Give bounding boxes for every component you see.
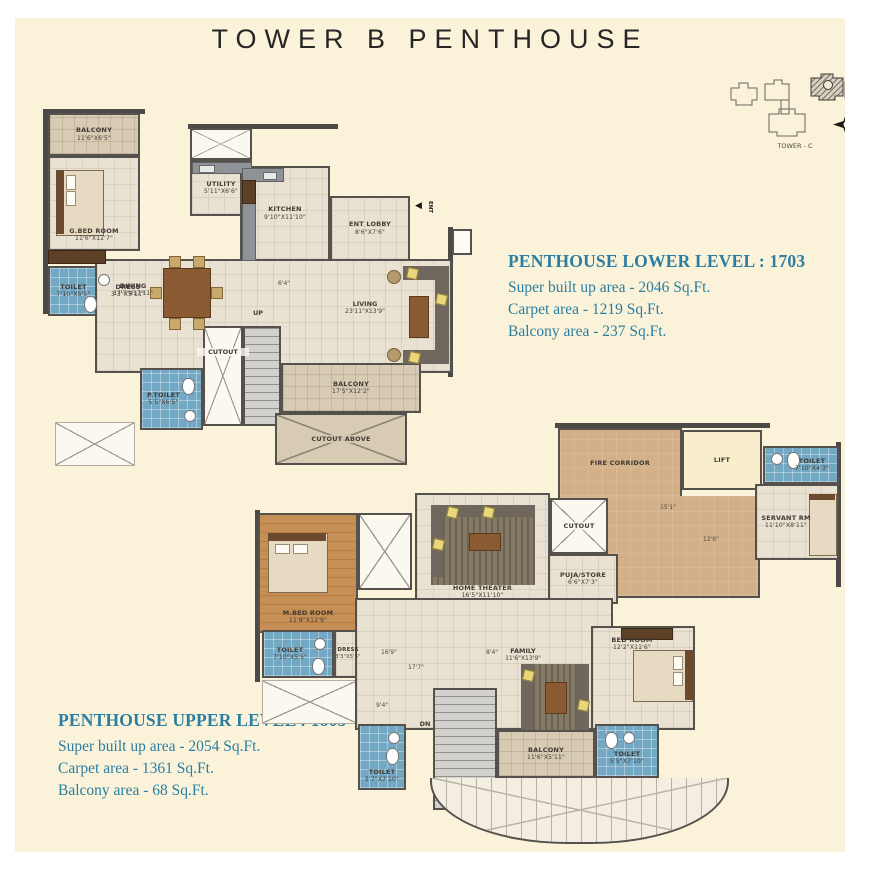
basin-icon xyxy=(388,732,400,744)
toilet-fixture-icon xyxy=(605,732,618,749)
chair-icon xyxy=(193,318,205,330)
wardrobe-icon xyxy=(48,250,106,264)
room-label: UTILITY 5'11"X6'6" xyxy=(204,180,238,196)
lower-level-balcony-area: Balcony area - 237 Sq.Ft. xyxy=(508,321,805,343)
room-label: BALCONY 11'6"X5'11" xyxy=(527,746,565,762)
toilet-fixture-icon xyxy=(386,748,399,765)
bed-icon xyxy=(268,533,328,593)
compass-icon xyxy=(833,110,845,139)
room-label: PUJA/STORE 6'6"X7'3" xyxy=(560,571,606,587)
room-label: BED ROOM 12'2"X11'6" xyxy=(597,636,667,652)
sofa-icon xyxy=(577,664,589,730)
terrace-hatch-upper xyxy=(262,680,358,724)
room-servant: SERVANT RM 11'10"X8'11" xyxy=(755,484,839,560)
room-label: TOILET 5'7"X7'10" xyxy=(360,768,404,784)
cutout-label: CUTOUT xyxy=(562,522,597,530)
dimension: 9'4" xyxy=(376,702,388,709)
lower-level-info: PENTHOUSE LOWER LEVEL : 1703 Super built… xyxy=(508,251,805,343)
toilet-fixture-icon xyxy=(312,658,325,675)
room-label: LIFT xyxy=(714,456,730,464)
shaft-upper xyxy=(358,513,412,590)
room-ent-lobby: ENT LOBBY 8'6"X7'6" xyxy=(330,196,410,261)
lower-level-carpet-area: Carpet area - 1219 Sq.Ft. xyxy=(508,299,805,321)
room-balcony-upper: BALCONY 11'6"X5'11" xyxy=(497,730,595,778)
room-lift: LIFT xyxy=(682,430,762,490)
upper-level-floorplan: FIRE CORRIDOR 15'1" 12'6" LIFT TOILET 7'… xyxy=(255,418,845,852)
dining-table-icon xyxy=(163,268,211,318)
room-kitchen: KITCHEN 9'10"X11'10" xyxy=(240,166,330,261)
room-fire-corridor: FIRE CORRIDOR xyxy=(558,428,682,498)
coffee-table-icon xyxy=(545,682,567,714)
basin-icon xyxy=(771,453,783,465)
dimension: 15'1" xyxy=(660,504,676,511)
room-label: TOILET 7'10"X5'5" xyxy=(273,646,307,662)
page-title: TOWER B PENTHOUSE xyxy=(15,24,845,55)
niche xyxy=(452,229,472,255)
cushion-icon xyxy=(446,506,459,519)
room-balcony-top: BALCONY 11'6"X6'5" xyxy=(48,113,140,156)
entry-arrow-icon: ◀ ENT xyxy=(415,202,436,211)
dimension: 6'4" xyxy=(278,280,290,287)
living-label: LIVING 23'11"X13'9" xyxy=(325,300,405,316)
room-m-bed-room: M.BED ROOM 11'8"X12'9" xyxy=(258,513,358,633)
cushion-icon xyxy=(408,351,421,364)
room-label: HOME THEATER 16'5"X11'10" xyxy=(417,584,548,600)
room-toilet-master: TOILET 7'10"X5'5" xyxy=(262,630,334,678)
cushion-icon xyxy=(577,699,590,712)
room-toilet-top: TOILET 7'10"X4'3" xyxy=(763,446,839,484)
room-label: M.BED ROOM 11'8"X12'9" xyxy=(260,609,356,625)
room-label: DRESS 3'3"X5'5" xyxy=(335,647,360,661)
chair-icon xyxy=(193,256,205,268)
basin-icon xyxy=(184,410,196,422)
up-label: UP xyxy=(243,309,273,317)
room-home-theater: HOME THEATER 16'5"X11'10" xyxy=(415,493,550,608)
chair-icon xyxy=(211,287,223,299)
room-label: BALCONY 17'5"X12'2" xyxy=(332,380,370,396)
sofa-icon xyxy=(435,280,449,350)
cushion-icon xyxy=(406,267,419,280)
dimension: 17'7" xyxy=(408,664,424,671)
room-bed-room: BED ROOM 12'2"X11'6" xyxy=(591,626,695,730)
dimension: 12'6" xyxy=(703,536,719,543)
room-toilet-right: TOILET 5'5"X7'10" xyxy=(595,724,659,778)
family-label: FAMILY 11'6"X13'9" xyxy=(493,647,553,663)
room-puja-store: PUJA/STORE 6'6"X7'3" xyxy=(548,554,618,604)
cutout-shaft-upper: CUTOUT xyxy=(550,498,608,554)
room-label: KITCHEN 9'10"X11'10" xyxy=(264,205,306,221)
coffee-table-icon xyxy=(409,296,429,338)
cushion-icon xyxy=(435,293,448,306)
key-plan-highlight-dot xyxy=(824,81,833,90)
toilet-fixture-icon xyxy=(182,378,195,395)
curved-terrace xyxy=(430,778,729,844)
key-plan-tower-label: TOWER - C xyxy=(776,142,813,150)
cushion-icon xyxy=(522,669,535,682)
chair-icon xyxy=(169,318,181,330)
cushion-icon xyxy=(432,538,445,551)
lower-level-title: PENTHOUSE LOWER LEVEL : 1703 xyxy=(508,251,805,272)
duct-shaft xyxy=(190,128,252,160)
room-label: BALCONY 11'6"X6'5" xyxy=(76,126,112,142)
lower-level-super-area: Super built up area - 2046 Sq.Ft. xyxy=(508,277,805,299)
bed-icon xyxy=(633,650,693,702)
room-toilet-left: TOILET 5'7"X7'10" xyxy=(358,724,406,790)
page-background: TOWER B PENTHOUSE TOWER - C PENTHOUSE LO… xyxy=(15,18,845,852)
bed-icon xyxy=(809,494,837,556)
terrace-hatch xyxy=(55,422,135,466)
room-label: TOILET 7'10"X4'3" xyxy=(795,457,829,473)
side-table-icon xyxy=(387,348,401,362)
room-g-bed-room: G.BED ROOM 11'6"X12'7" xyxy=(48,156,140,251)
basin-icon xyxy=(623,732,635,744)
dn-label: DN xyxy=(413,720,437,728)
room-label: FIRE CORRIDOR xyxy=(590,459,650,467)
basin-icon xyxy=(314,638,326,650)
key-plan: TOWER - C xyxy=(725,66,845,158)
room-label: SERVANT RM 11'10"X8'11" xyxy=(761,514,810,530)
dimension: 16'9" xyxy=(381,649,397,656)
room-label: TOILET 7'10"X5'5" xyxy=(56,283,90,299)
coffee-table-icon xyxy=(469,533,501,551)
room-p-toilet: P.TOILET 5'5"X6'5" xyxy=(140,368,203,430)
stairs-up xyxy=(243,326,281,426)
cutout-above-label: CUTOUT ABOVE xyxy=(309,435,372,443)
room-balcony-bottom: BALCONY 17'5"X12'2" xyxy=(281,363,421,413)
side-table-icon xyxy=(387,270,401,284)
cutout-label: CUTOUT xyxy=(197,348,249,356)
fridge-icon xyxy=(242,180,256,204)
room-label: P.TOILET 5'5"X6'5" xyxy=(147,391,180,407)
dining-label: DINING 17'7"X17'11" xyxy=(105,282,161,298)
chair-icon xyxy=(169,256,181,268)
cutout-shaft xyxy=(203,326,243,426)
room-label: TOILET 5'5"X7'10" xyxy=(610,750,644,766)
cushion-icon xyxy=(482,506,495,519)
room-label: G.BED ROOM 11'6"X12'7" xyxy=(50,227,138,243)
room-label: ENT LOBBY 8'6"X7'6" xyxy=(349,220,391,236)
